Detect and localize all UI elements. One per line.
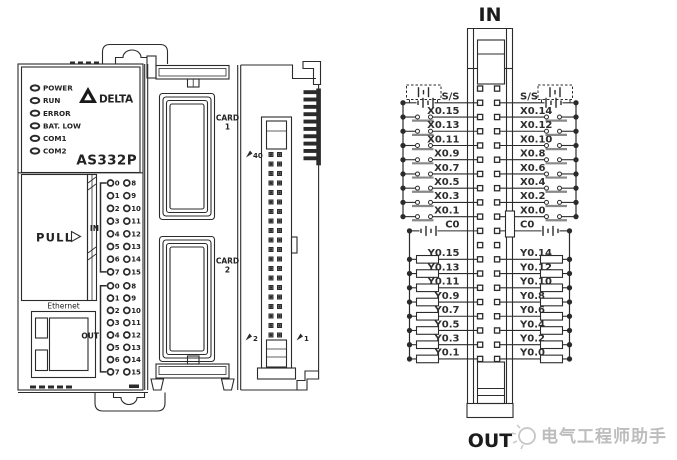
connector-pin-dot [279,287,281,289]
io-led [108,332,114,338]
terminal-pin [478,228,483,233]
terminal-pin [478,143,483,148]
bottom-right-hook [297,371,319,390]
status-led-label: RUN [43,96,60,105]
terminal-pin [478,342,483,347]
junction-dot [401,158,405,162]
io-led [124,344,130,350]
in-led-grid: 0819210311412513614715 [108,180,142,277]
switch-contact [558,186,562,190]
bottom-clip-latch [114,393,145,405]
terminal-label: X0.0 [520,205,545,216]
terminal-pin [495,157,500,162]
io-led-number: 7 [115,268,120,276]
switch-contact [545,158,549,162]
io-led [108,244,114,250]
switch-contact [416,215,420,219]
card1-label-line1: CARD [216,114,239,123]
terminal-pin [478,214,483,219]
terminal-pin [478,171,483,176]
status-led [31,111,39,116]
status-led [31,85,39,90]
junction-dot [407,229,411,233]
io-led-number: 15 [131,268,141,276]
io-led [108,205,114,211]
io-led [124,295,130,301]
junction-dot [567,286,571,290]
terminal-label: X0.7 [434,163,459,174]
terminal-pins [478,86,500,362]
junction-dot [567,328,571,332]
io-led [124,369,130,375]
model-label: AS332P [76,153,137,169]
connector-pin-dot [279,315,281,317]
din-rail-comb [304,90,317,160]
terminal-pin [478,129,483,134]
terminal-pin [478,356,483,361]
pull-label: PULL [36,231,73,245]
terminal-pin [495,257,500,262]
io-led [124,231,130,237]
io-led-number: 0 [115,180,120,188]
in-bracket [101,183,107,272]
switch-contact [416,143,420,147]
io-led-number: 2 [115,307,120,315]
connector-pin-dot [270,201,272,203]
comb-tooth [304,90,317,94]
io-led-number: 6 [115,356,120,364]
terminal-pin [495,299,500,304]
io-led [108,231,114,237]
junction-dot [401,186,405,190]
comb-tooth [304,156,317,160]
junction-dot [407,300,411,304]
junction-dot [574,186,578,190]
io-led [108,344,114,350]
connector-pin-dot [279,211,281,213]
rail-jumper [506,211,515,237]
terminal-pin [478,186,483,191]
io-led [108,369,114,375]
io-led-number: 8 [131,180,136,188]
switch-contact [429,200,433,204]
junction-dot [401,129,405,133]
terminal-label: X0.3 [434,191,459,202]
connector-pin-dot [270,192,272,194]
io-led-number: 1 [115,295,120,303]
terminal-pin [495,100,500,105]
junction-dot [407,257,411,261]
status-led [31,98,39,103]
junction-dot [574,215,578,219]
connector-pin-dot [270,277,272,279]
connector-pin-dot [270,154,272,156]
io-led [108,283,114,289]
junction-dot [567,271,571,275]
connector-pin-dot [279,220,281,222]
connector-pin-dot [279,334,281,336]
watermark-logo-icon [512,425,535,449]
switch-contact [429,115,433,119]
junction-dot [407,271,411,275]
io-led-number: 2 [115,205,120,213]
io-led-number: 7 [115,368,120,376]
top-clip-latch [116,50,149,64]
junction-dot [401,200,405,204]
terminal-pin [495,129,500,134]
terminal-label: S/S [520,92,538,103]
switch-contact [429,129,433,133]
foot [151,379,164,390]
terminal-pin [495,114,500,119]
io-led [124,320,130,326]
io-led-number: 6 [115,256,120,264]
comb-tooth [304,98,317,102]
top-clip-post [147,56,156,78]
junction-dot [401,172,405,176]
terminal-pin [478,200,483,205]
switch-contact [416,129,420,133]
connector-pin-dot [279,258,281,260]
delta-logo: DELTA [79,87,134,106]
terminal-pin [495,356,500,361]
comb-tooth [304,149,317,153]
switch-contact [558,172,562,176]
status-led-label: COM2 [43,147,67,156]
foot [222,379,235,390]
switch-contact [429,215,433,219]
io-led [108,357,114,363]
terminal-pin [495,214,500,219]
connector-pin-dot [270,230,272,232]
status-led-label: COM1 [43,134,67,143]
connector-pin-dot [270,325,272,327]
io-led-number: 4 [115,230,120,238]
out-led-grid: 0819210311412513614715 [108,282,142,376]
junction-dot [574,129,578,133]
switch-contact [416,200,420,204]
connector-pin-dot [270,258,272,260]
terminal-pin [478,86,483,91]
status-led-label: BAT. LOW [43,121,81,130]
io-led-number: 5 [115,243,120,251]
io-led-number: 3 [115,319,120,327]
terminal-pin [495,171,500,176]
terminal-pin [495,285,500,290]
switch-contact [558,215,562,219]
figure-canvas: DELTA POWERRUNERRORBAT. LOWCOM1COM2 AS33… [0,0,677,460]
top-clip [103,45,168,65]
terminal-label: X0.4 [520,177,545,188]
terminal-label: X0.6 [520,163,545,174]
terminal-pin [495,186,500,191]
junction-dot [574,101,578,105]
io-led-number: 14 [131,356,141,364]
io-led [108,180,114,186]
status-led-label: POWER [43,84,73,93]
connector-pin-dot [270,239,272,241]
io-led [108,295,114,301]
junction-dot [407,357,411,361]
connector-pin-dot [279,306,281,308]
io-led-number: 3 [115,218,120,226]
junction-dot [567,343,571,347]
connector-pin-dot [279,230,281,232]
io-led [124,357,130,363]
in-group-label: IN [90,224,99,233]
wiring-diagram: IN OUT S/SX0.15X0.13X0.11X0.9X0.7X0.5X0.… [401,4,578,452]
switch-contact [558,200,562,204]
switch-contact [545,143,549,147]
junction-dot [407,314,411,318]
watermark-text: 电气工程师助手 [541,426,667,447]
io-led-number: 11 [131,319,141,327]
io-led [124,332,130,338]
junction-dot [567,300,571,304]
status-led-label: ERROR [43,109,71,118]
io-led-number: 12 [131,332,141,340]
terminal-pin [478,157,483,162]
switch-contact [429,172,433,176]
io-led [124,218,130,224]
connector-pin-dot [270,334,272,336]
io-led [124,269,130,275]
terminal-pin [495,314,500,319]
io-led [124,307,130,313]
connector-pin-dot [270,211,272,213]
terminal-label: X0.9 [434,149,459,160]
terminal-pin [478,314,483,319]
terminal-label: S/S [441,92,459,103]
io-led-number: 9 [131,295,136,303]
connector-pin-dot [279,277,281,279]
junction-dot [574,172,578,176]
status-led [31,148,39,153]
terminal-label: X0.5 [434,177,459,188]
io-led [108,320,114,326]
junction-dot [401,115,405,119]
io-led-number: 13 [131,344,141,352]
plc-wiring-figure: DELTA POWERRUNERRORBAT. LOWCOM1COM2 AS33… [0,0,677,460]
switch-contact [558,143,562,147]
terminal-pin [478,299,483,304]
top-right-hook [303,62,321,85]
io-led [108,256,114,262]
wiring-rows: S/SX0.15X0.13X0.11X0.9X0.7X0.5X0.3X0.1C0… [401,85,578,363]
switch-contact [429,143,433,147]
io-led-number: 1 [115,192,120,200]
connector-pin-dot [279,249,281,251]
switch-contact [558,158,562,162]
connector-pin-dot [270,268,272,270]
terminal-pin [495,228,500,233]
connector-pin-dot [270,163,272,165]
wiring-out-title: OUT [468,430,513,452]
switch-contact [545,186,549,190]
comb-tooth [304,112,317,116]
terminal-pin [478,271,483,276]
junction-dot [574,143,578,147]
comb-tooth [304,142,317,146]
switch-contact [416,158,420,162]
terminal-pin [495,200,500,205]
io-led-number: 8 [131,282,136,290]
terminal-pin [478,257,483,262]
pin2-marker: 2 [253,335,258,343]
switch-contact [545,129,549,133]
io-led-number: 11 [131,218,141,226]
connector-pin-dot [279,182,281,184]
card2-label-line1: CARD [216,257,239,266]
pull-arrow-icon [72,232,81,242]
connector-pin-dot [270,182,272,184]
out-bracket [101,286,107,372]
connector-pin-dot [270,173,272,175]
status-led [31,123,39,128]
junction-dot [574,115,578,119]
io-led-number: 13 [131,243,141,251]
terminal-pin [495,342,500,347]
switch-contact [558,115,562,119]
terminal-pin [495,243,500,248]
brand-wordmark: DELTA [99,94,134,106]
pin1-marker: 1 [304,335,309,343]
io-led-number: 14 [131,256,141,264]
pin1-flag-icon [297,334,304,341]
switch-contact [416,172,420,176]
io-led [108,193,114,199]
pin40-flag-icon [246,151,253,158]
bottom-clip [95,393,165,412]
connector-pin-dot [270,287,272,289]
pin40-marker: 40 [253,152,263,160]
terminal-pin [495,143,500,148]
switch-contact [545,172,549,176]
junction-dot [407,343,411,347]
terminal-pin [478,328,483,333]
comb-tooth [304,134,317,138]
load-symbol [417,355,439,363]
terminal-label: X0.1 [434,205,459,216]
card2-slot [160,237,215,362]
io-led [124,180,130,186]
switch-contact [416,115,420,119]
junction-dot [401,143,405,147]
watermark: 电气工程师助手 [512,425,667,449]
io-led [124,256,130,262]
connector-pin-dot [270,249,272,251]
connector-pin-dot [279,163,281,165]
card1-label-line2: 1 [225,123,230,132]
junction-dot [574,200,578,204]
comb-tooth [304,127,317,131]
comb-tooth [304,105,317,109]
comb-tooth [304,120,317,124]
terminal-pin [478,243,483,248]
junction-dot [567,257,571,261]
terminal-pin [478,114,483,119]
terminal-pin [495,86,500,91]
connector-pin-dot [270,306,272,308]
wiring-in-title: IN [479,4,502,26]
connector-pin-dot [279,173,281,175]
connector-pin-dot [279,268,281,270]
terminal-pin [478,285,483,290]
io-led-number: 0 [115,282,120,290]
io-connector-pins [269,153,282,338]
terminal-pin [495,328,500,333]
connector-pin-dot [270,296,272,298]
io-led [124,193,130,199]
switch-contact [429,158,433,162]
io-led-number: 15 [131,368,141,376]
junction-dot [407,328,411,332]
connector-pin-dot [279,201,281,203]
connector-pin-dot [270,315,272,317]
terminal-label: X0.8 [520,149,545,160]
junction-dot [567,357,571,361]
connector-pin-dot [279,192,281,194]
switch-contact [545,200,549,204]
connector-pin-dot [270,220,272,222]
terminal-label: X0.2 [520,191,545,202]
junction-dot [567,229,571,233]
status-led [31,136,39,141]
junction-dot [401,101,405,105]
io-led [124,283,130,289]
pin2-flag-icon [246,334,253,341]
middle-bottom-tab [188,356,200,364]
io-led-number: 9 [131,192,136,200]
ethernet-port [32,312,96,378]
terminal-label: C0 [445,220,459,231]
io-led [124,205,130,211]
io-led-number: 4 [115,332,120,340]
switch-contact [545,215,549,219]
connector-pin-dot [279,154,281,156]
status-led-block: POWERRUNERRORBAT. LOWCOM1COM2 [31,84,81,156]
junction-dot [407,286,411,290]
io-led [108,218,114,224]
io-led-number: 10 [131,205,141,213]
middle-top-cap [156,66,229,80]
junction-dot [401,215,405,219]
io-led [124,244,130,250]
connector-pin-dot [279,239,281,241]
card2-label-line2: 2 [225,266,230,275]
terminal-pin [495,271,500,276]
junction-dot [567,314,571,318]
switch-contact [558,129,562,133]
out-group-label: OUT [81,332,99,341]
junction-dot [574,158,578,162]
connector-pin-dot [279,325,281,327]
io-led [108,269,114,275]
connector-pin-dot [279,296,281,298]
io-led-number: 5 [115,344,120,352]
terminal-label: C0 [520,220,534,231]
terminal-pin [478,100,483,105]
io-led-number: 12 [131,230,141,238]
switch-contact [429,186,433,190]
switch-contact [416,186,420,190]
switch-contact [545,115,549,119]
io-led [108,307,114,313]
card1-slot [160,94,215,220]
ethernet-label: Ethernet [47,302,79,311]
io-led-number: 10 [131,307,141,315]
load-symbol [541,355,563,363]
